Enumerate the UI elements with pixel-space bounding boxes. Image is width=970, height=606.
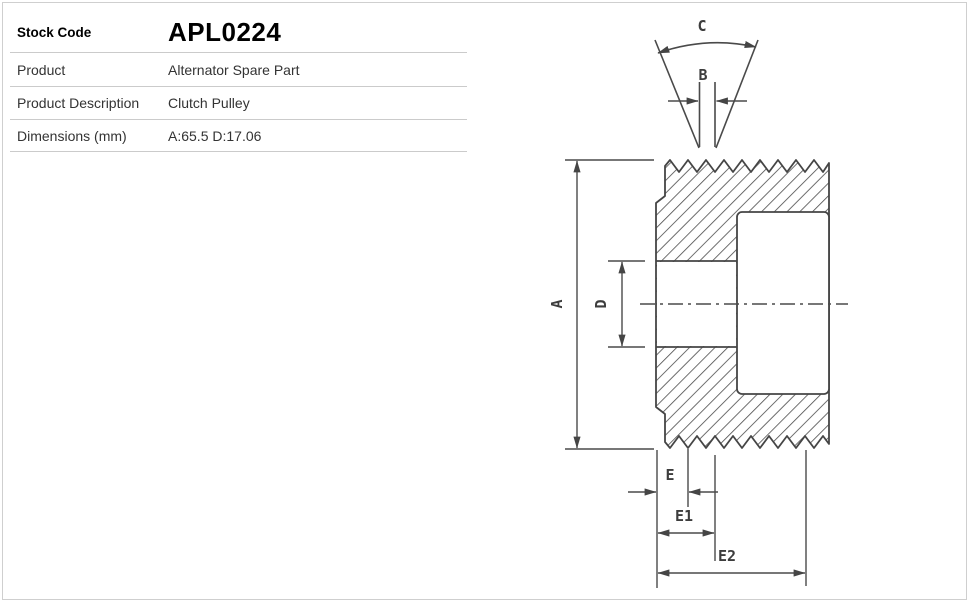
dim-label-d: D — [592, 299, 610, 308]
product-value: Alternator Spare Part — [168, 62, 300, 78]
dimensions-value: A:65.5 D:17.06 — [168, 128, 261, 144]
bearing-cavity — [737, 212, 829, 394]
dim-label-b: B — [698, 66, 707, 84]
product-spec-table: Stock Code APL0224 Product Alternator Sp… — [10, 13, 467, 152]
dimensions-label: Dimensions (mm) — [10, 128, 168, 144]
stock-code-value: APL0224 — [168, 17, 281, 48]
dim-label-e2: E2 — [718, 547, 736, 565]
table-row-product: Product Alternator Spare Part — [10, 53, 467, 87]
product-label: Product — [10, 62, 168, 78]
stock-code-label: Stock Code — [10, 25, 168, 40]
groove-v-right-leg — [716, 40, 758, 148]
product-description-label: Product Description — [10, 95, 168, 111]
pulley-technical-drawing: C B A D E E1 E2 — [540, 0, 970, 606]
groove-v-left-leg — [655, 40, 699, 148]
table-row-product-description: Product Description Clutch Pulley — [10, 87, 467, 120]
table-row-stock-code: Stock Code APL0224 — [10, 13, 467, 53]
dim-label-a: A — [548, 299, 566, 308]
table-row-dimensions: Dimensions (mm) A:65.5 D:17.06 — [10, 120, 467, 152]
dim-label-e1: E1 — [675, 507, 693, 525]
dim-label-c: C — [697, 17, 706, 35]
dim-c-arc — [658, 43, 756, 53]
product-description-value: Clutch Pulley — [168, 95, 250, 111]
dim-label-e: E — [665, 466, 674, 484]
